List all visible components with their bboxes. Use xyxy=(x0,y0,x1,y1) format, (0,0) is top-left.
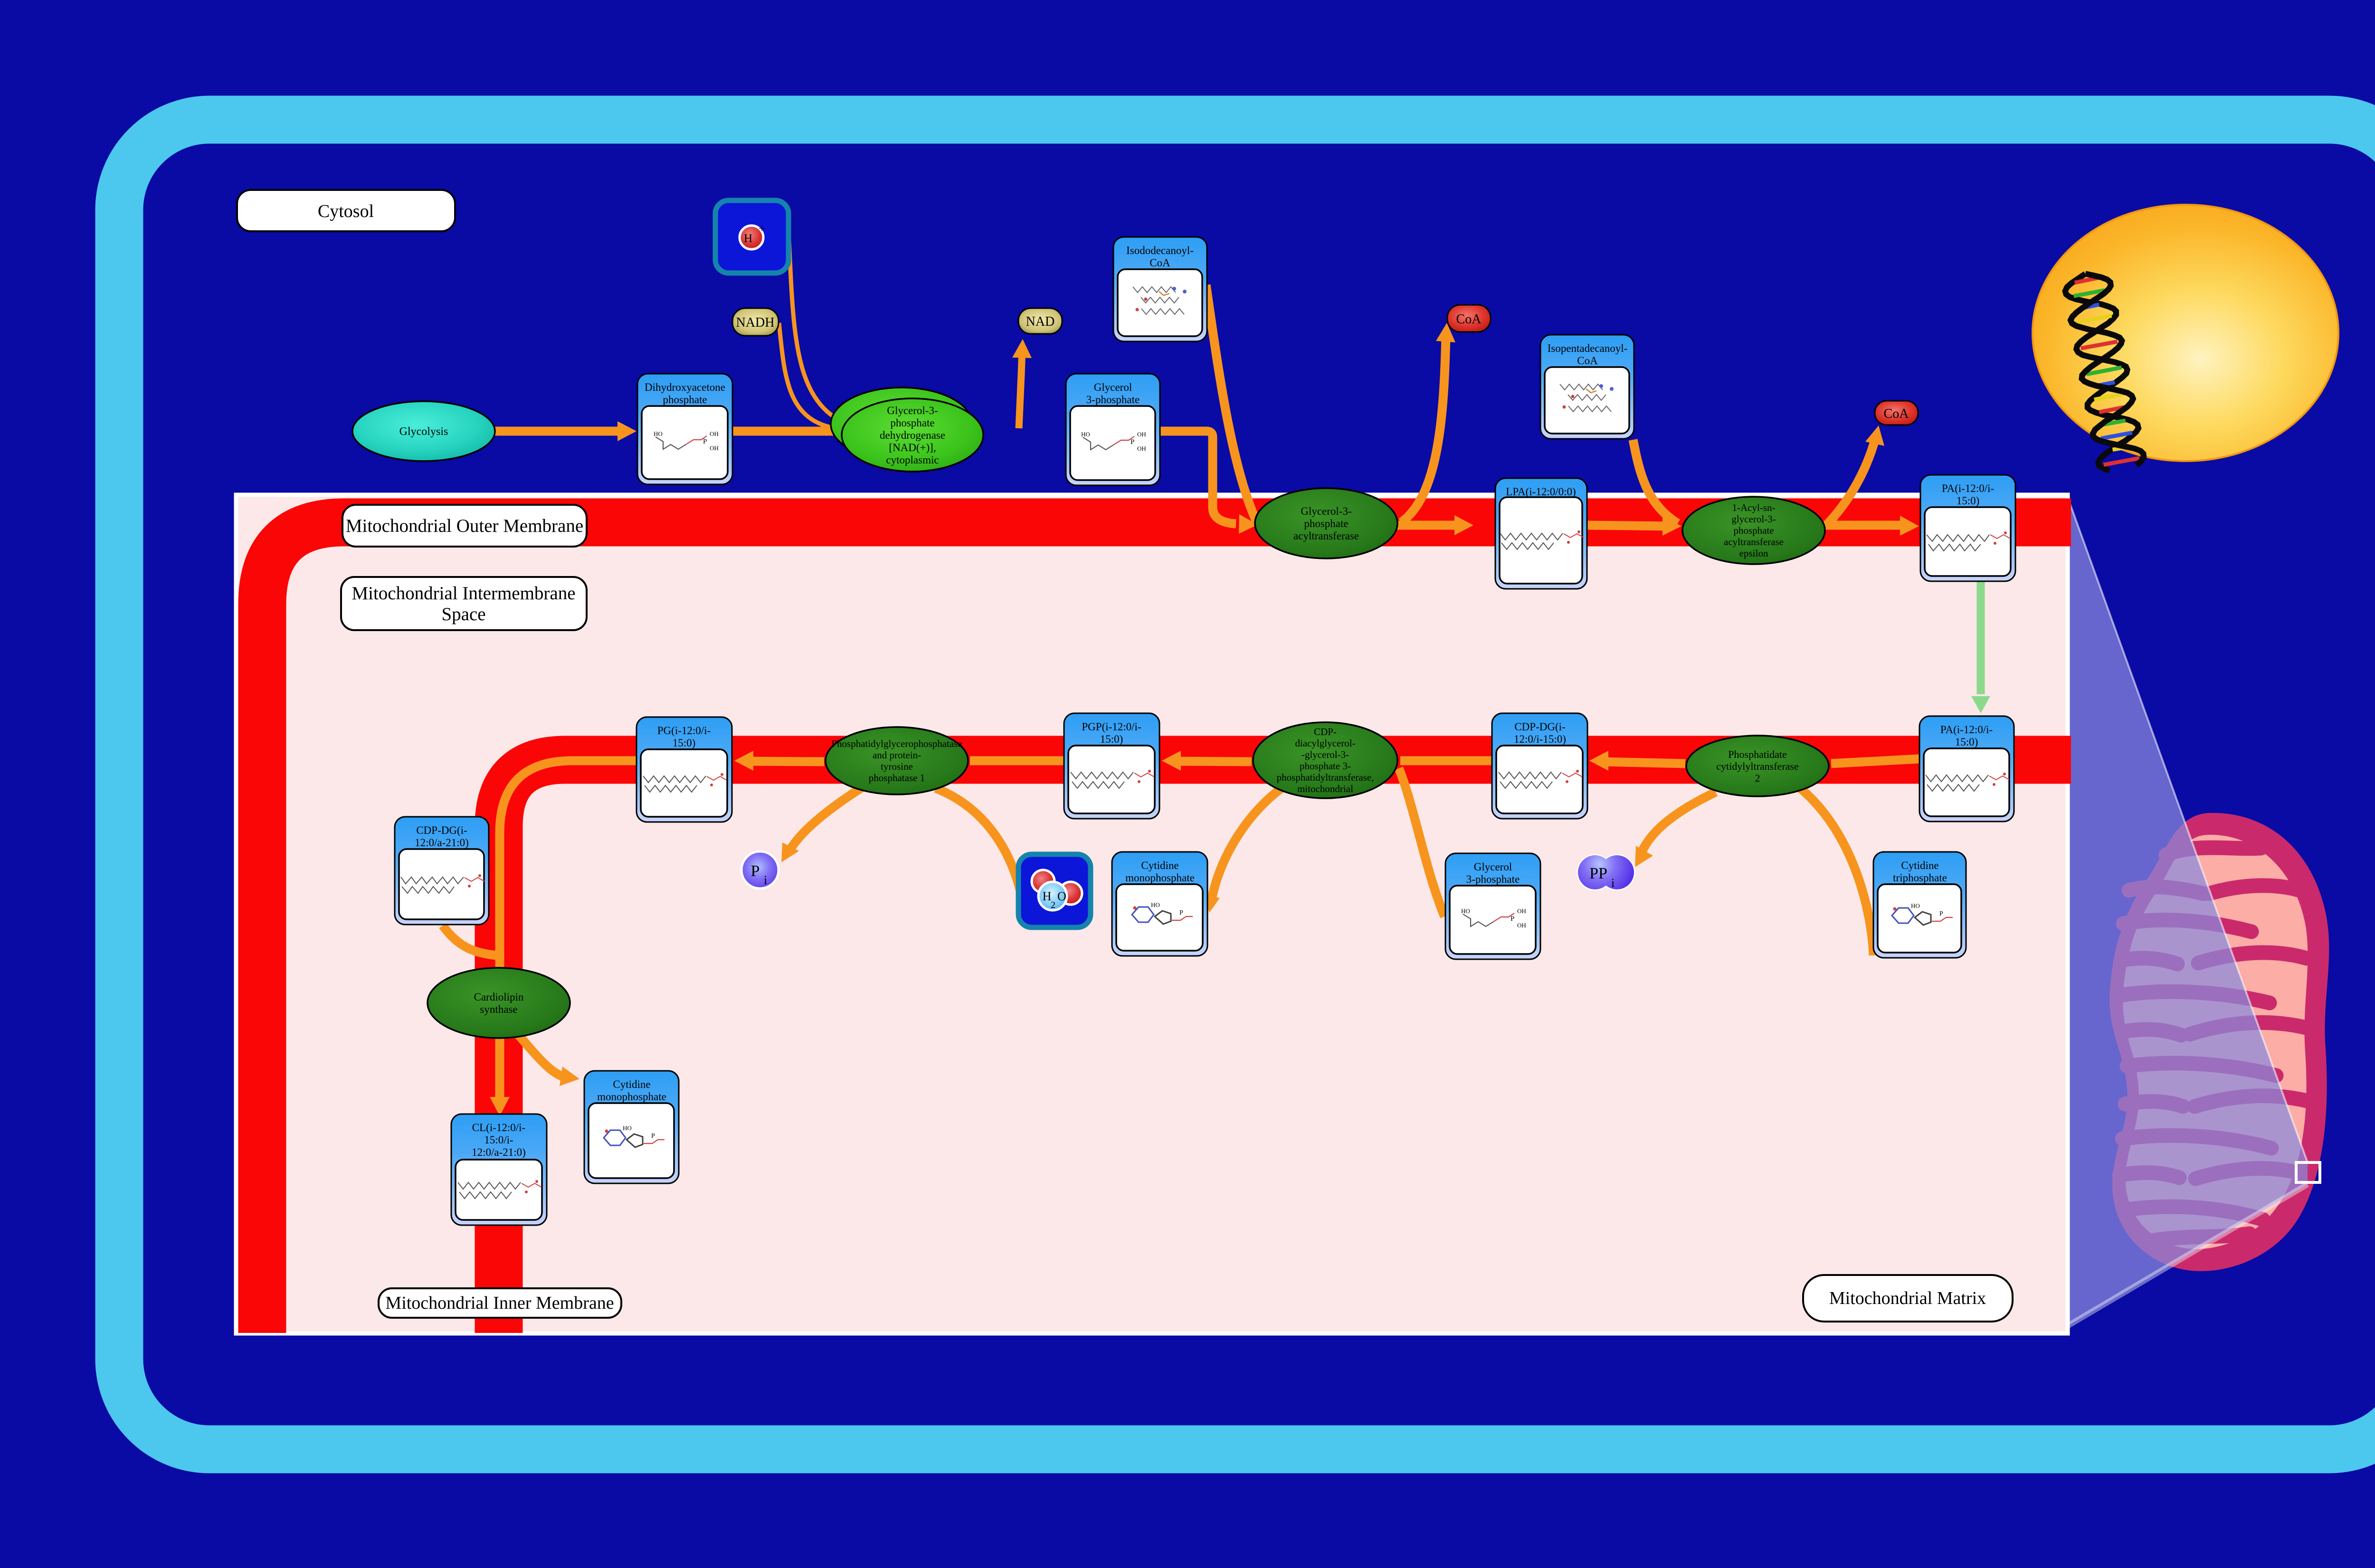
svg-text:H: H xyxy=(744,232,752,245)
svg-text:15:0): 15:0) xyxy=(1955,736,1978,748)
svg-text:Cardiolipin: Cardiolipin xyxy=(474,991,524,1003)
svg-text:12:0/a-21:0): 12:0/a-21:0) xyxy=(472,1146,526,1158)
svg-text:acyltransferase: acyltransferase xyxy=(1293,530,1359,542)
svg-text:H: H xyxy=(1043,889,1052,903)
svg-text:15:0): 15:0) xyxy=(1100,733,1123,745)
svg-text:PG(i-12:0/i-: PG(i-12:0/i- xyxy=(657,725,711,737)
svg-text:O: O xyxy=(1057,889,1066,903)
svg-text:2: 2 xyxy=(1755,772,1760,784)
svg-text:epsilon: epsilon xyxy=(1739,548,1768,559)
svg-text:Cytidine: Cytidine xyxy=(1141,860,1178,871)
svg-text:-glycerol-3-: -glycerol-3- xyxy=(1301,749,1349,760)
svg-text:monophosphate: monophosphate xyxy=(597,1091,666,1103)
svg-text:Glycerol-3-: Glycerol-3- xyxy=(1301,505,1351,517)
svg-text:acyltransferase: acyltransferase xyxy=(1724,536,1784,548)
svg-text:3-phosphate: 3-phosphate xyxy=(1466,873,1520,885)
svg-text:Mitochondrial Inner Membrane: Mitochondrial Inner Membrane xyxy=(385,1293,614,1313)
svg-text:PGP(i-12:0/i-: PGP(i-12:0/i- xyxy=(1082,721,1141,733)
svg-text:cytoplasmic: cytoplasmic xyxy=(886,454,939,466)
svg-text:i: i xyxy=(764,873,767,887)
svg-text:2: 2 xyxy=(1051,900,1055,910)
svg-text:P: P xyxy=(751,862,760,880)
svg-text:Mitochondrial Intermembrane: Mitochondrial Intermembrane xyxy=(351,583,575,604)
svg-text:CoA: CoA xyxy=(1149,257,1170,269)
svg-text:synthase: synthase xyxy=(480,1003,517,1015)
svg-text:Mitochondrial Outer Membrane: Mitochondrial Outer Membrane xyxy=(346,516,583,536)
svg-text:glycerol-3-: glycerol-3- xyxy=(1731,513,1776,525)
svg-text:LPA(i-12:0/0:0): LPA(i-12:0/0:0) xyxy=(1506,486,1576,498)
svg-text:P: P xyxy=(651,1133,655,1140)
svg-text:CoA: CoA xyxy=(1884,406,1909,421)
svg-text:OH: OH xyxy=(710,444,719,452)
svg-text:HO: HO xyxy=(623,1124,632,1132)
svg-text:Dihydroxyacetone: Dihydroxyacetone xyxy=(645,381,725,393)
svg-text:NADH: NADH xyxy=(736,315,775,330)
svg-text:15:0/i-: 15:0/i- xyxy=(484,1134,513,1146)
svg-text:phosphate: phosphate xyxy=(663,394,707,406)
svg-text:phosphatidyltransferase,: phosphatidyltransferase, xyxy=(1277,772,1374,783)
svg-text:+: + xyxy=(759,223,765,235)
svg-text:OH: OH xyxy=(1137,431,1146,438)
svg-text:monophosphate: monophosphate xyxy=(1125,872,1195,884)
svg-text:P: P xyxy=(1130,438,1134,446)
svg-text:i: i xyxy=(1611,876,1615,890)
svg-text:P: P xyxy=(1939,910,1943,917)
svg-text:Phosphatidylglycerophosphatase: Phosphatidylglycerophosphatase xyxy=(831,738,962,749)
svg-text:PP: PP xyxy=(1589,865,1607,882)
svg-text:PA(i-12:0/i-: PA(i-12:0/i- xyxy=(1942,482,1994,494)
svg-text:12:0/i-15:0): 12:0/i-15:0) xyxy=(1514,733,1566,745)
svg-text:CoA: CoA xyxy=(1577,355,1598,367)
svg-text:CDP-DG(i-: CDP-DG(i- xyxy=(416,824,467,836)
svg-text:tyrosine: tyrosine xyxy=(881,761,913,772)
svg-text:Cytidine: Cytidine xyxy=(613,1078,650,1090)
svg-text:P: P xyxy=(703,438,707,445)
svg-text:1-Acyl-sn-: 1-Acyl-sn- xyxy=(1732,502,1776,513)
svg-text:OH: OH xyxy=(1517,922,1526,929)
svg-text:CoA: CoA xyxy=(1456,312,1482,327)
svg-text:and protein-: and protein- xyxy=(873,749,921,761)
svg-text:Phosphatidate: Phosphatidate xyxy=(1728,748,1786,760)
svg-text:phosphatase 1: phosphatase 1 xyxy=(869,772,925,784)
svg-text:triphosphate: triphosphate xyxy=(1893,872,1947,884)
svg-text:Glycerol-3-: Glycerol-3- xyxy=(887,405,938,416)
svg-text:OH: OH xyxy=(710,430,719,437)
svg-text:HO: HO xyxy=(654,430,663,437)
svg-text:15:0): 15:0) xyxy=(1957,495,1980,507)
svg-text:Cytosol: Cytosol xyxy=(318,201,374,221)
svg-text:CL(i-12:0/i-: CL(i-12:0/i- xyxy=(472,1122,525,1133)
svg-text:phosphate: phosphate xyxy=(890,417,934,429)
svg-text:HO: HO xyxy=(1081,431,1090,438)
svg-text:HO: HO xyxy=(1461,907,1470,915)
svg-text:Space: Space xyxy=(441,604,485,624)
svg-text:Mitochondrial Matrix: Mitochondrial Matrix xyxy=(1829,1288,1986,1308)
svg-text:mitochondrial: mitochondrial xyxy=(1297,783,1353,794)
svg-text:OH: OH xyxy=(1137,445,1146,452)
svg-text:phosphate 3-: phosphate 3- xyxy=(1300,760,1351,772)
svg-text:NAD: NAD xyxy=(1026,314,1055,329)
svg-text:Glycerol: Glycerol xyxy=(1474,861,1512,873)
svg-text:diacylglycerol-: diacylglycerol- xyxy=(1295,737,1355,749)
svg-text:OH: OH xyxy=(1517,907,1526,915)
svg-text:HO: HO xyxy=(1151,901,1160,908)
svg-text:Glycerol: Glycerol xyxy=(1094,381,1132,393)
svg-text:Cytidine: Cytidine xyxy=(1901,860,1938,871)
svg-text:Isododecanoyl-: Isododecanoyl- xyxy=(1126,245,1194,256)
svg-text:PA(i-12:0/i-: PA(i-12:0/i- xyxy=(1940,724,1993,736)
svg-text:12:0/a-21:0): 12:0/a-21:0) xyxy=(415,837,469,849)
svg-text:phosphate: phosphate xyxy=(1733,525,1774,536)
svg-text:P: P xyxy=(1179,909,1183,916)
svg-text:CDP-DG(i-: CDP-DG(i- xyxy=(1514,721,1565,733)
svg-text:15:0): 15:0) xyxy=(673,737,696,749)
svg-text:Isopentadecanoyl-: Isopentadecanoyl- xyxy=(1548,342,1628,354)
svg-text:cytidylyltransferase: cytidylyltransferase xyxy=(1716,760,1799,772)
svg-text:P: P xyxy=(1510,915,1514,923)
svg-text:3-phosphate: 3-phosphate xyxy=(1086,394,1140,406)
svg-text:[NAD(+)],: [NAD(+)], xyxy=(889,442,936,453)
svg-text:HO: HO xyxy=(1911,902,1920,909)
svg-text:Glycolysis: Glycolysis xyxy=(399,425,448,438)
svg-text:CDP-: CDP- xyxy=(1314,726,1337,737)
svg-text:phosphate: phosphate xyxy=(1304,518,1348,529)
svg-text:dehydrogenase: dehydrogenase xyxy=(880,429,945,441)
